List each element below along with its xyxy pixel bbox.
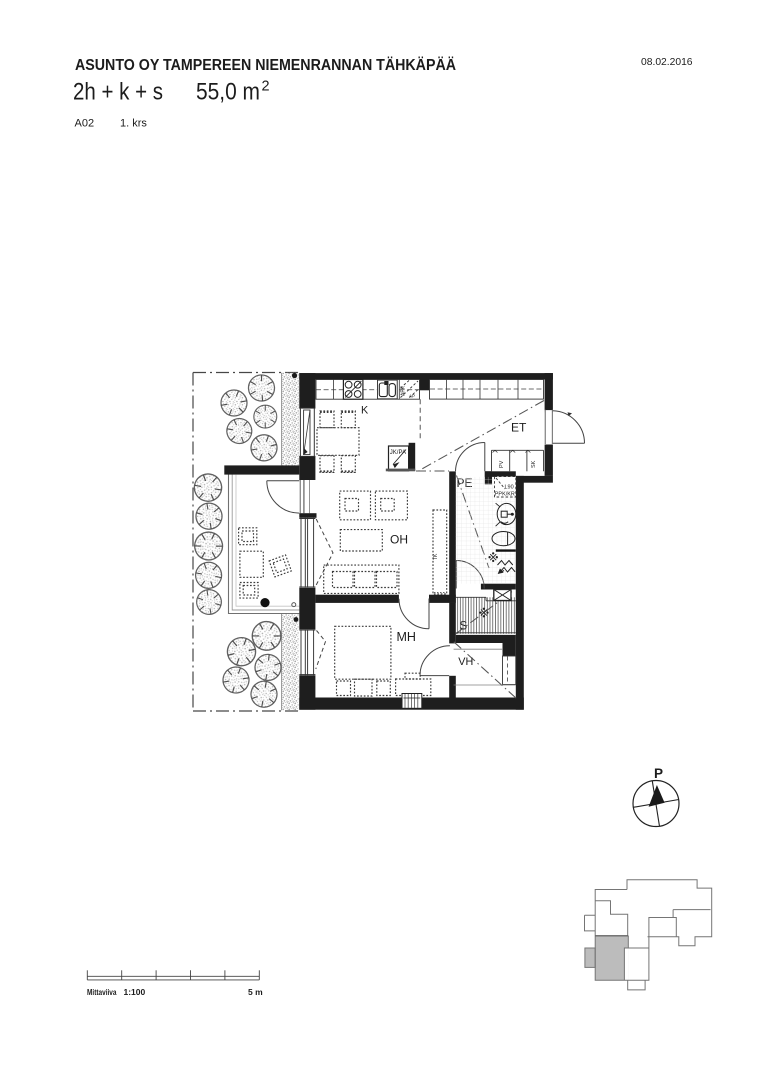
svg-text:SK: SK <box>531 460 537 468</box>
svg-text:ASUNTO OY TAMPEREEN NIEMENRANN: ASUNTO OY TAMPEREEN NIEMENRANNAN TÄHKÄPÄ… <box>75 57 456 74</box>
svg-text:1. krs: 1. krs <box>120 118 147 130</box>
svg-text:55,0 m: 55,0 m <box>196 79 260 106</box>
svg-text:08.02.2016: 08.02.2016 <box>641 57 693 68</box>
svg-text:L90: L90 <box>505 485 514 491</box>
svg-text:A02: A02 <box>75 118 95 130</box>
svg-text:VH: VH <box>458 656 473 668</box>
svg-text:P: P <box>654 766 663 781</box>
svg-text:APK: APK <box>401 385 407 396</box>
svg-text:2h + k + s: 2h + k + s <box>73 79 163 106</box>
svg-text:PPK/KR: PPK/KR <box>495 492 515 498</box>
svg-text:MH: MH <box>397 630 416 644</box>
svg-text:OH: OH <box>390 533 408 547</box>
svg-text:1:100: 1:100 <box>124 987 146 997</box>
svg-text:PV: PV <box>499 460 505 468</box>
svg-text:ET: ET <box>511 421 527 435</box>
svg-text:AP: AP <box>409 394 415 399</box>
svg-text:Mittaviiva: Mittaviiva <box>87 987 117 997</box>
svg-text:TK: TK <box>433 553 439 560</box>
svg-text:K: K <box>361 404 369 416</box>
svg-text:2: 2 <box>262 79 270 95</box>
svg-text:JK/PA: JK/PA <box>390 450 406 456</box>
svg-text:5 m: 5 m <box>248 987 263 997</box>
